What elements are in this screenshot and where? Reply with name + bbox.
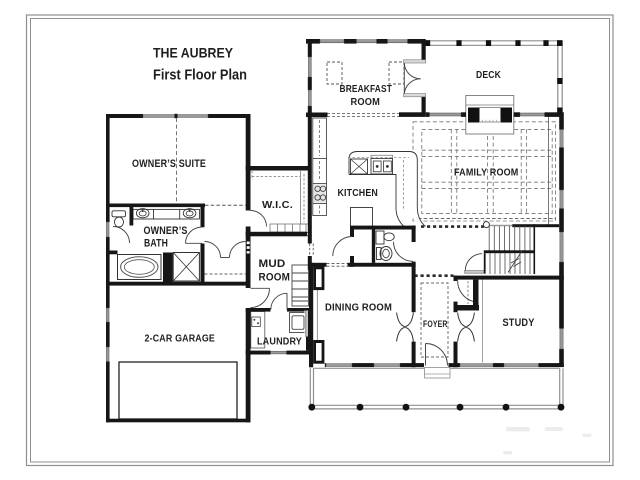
svg-text:First Floor Plan: First Floor Plan	[153, 68, 247, 84]
svg-text:THE AUBREY: THE AUBREY	[153, 45, 234, 61]
svg-text:OWNER’S SUITE: OWNER’S SUITE	[132, 158, 206, 170]
svg-text:LAUNDRY: LAUNDRY	[257, 336, 302, 348]
svg-text:STUDY: STUDY	[503, 317, 535, 329]
svg-text:BATH: BATH	[144, 238, 168, 250]
svg-text:ROOM: ROOM	[259, 272, 291, 284]
svg-text:OWNER’S: OWNER’S	[144, 225, 188, 237]
svg-text:DINING ROOM: DINING ROOM	[325, 302, 392, 314]
svg-text:MUD: MUD	[259, 258, 286, 270]
svg-text:FAMILY ROOM: FAMILY ROOM	[454, 166, 519, 178]
svg-text:KITCHEN: KITCHEN	[338, 187, 379, 199]
svg-text:ROOM: ROOM	[351, 96, 381, 108]
svg-text:2-CAR GARAGE: 2-CAR GARAGE	[145, 333, 216, 345]
svg-text:DECK: DECK	[476, 69, 501, 81]
svg-text:FOYER: FOYER	[423, 319, 448, 330]
svg-text:BREAKFAST: BREAKFAST	[340, 83, 393, 95]
svg-text:W.I.C.: W.I.C.	[262, 199, 293, 211]
